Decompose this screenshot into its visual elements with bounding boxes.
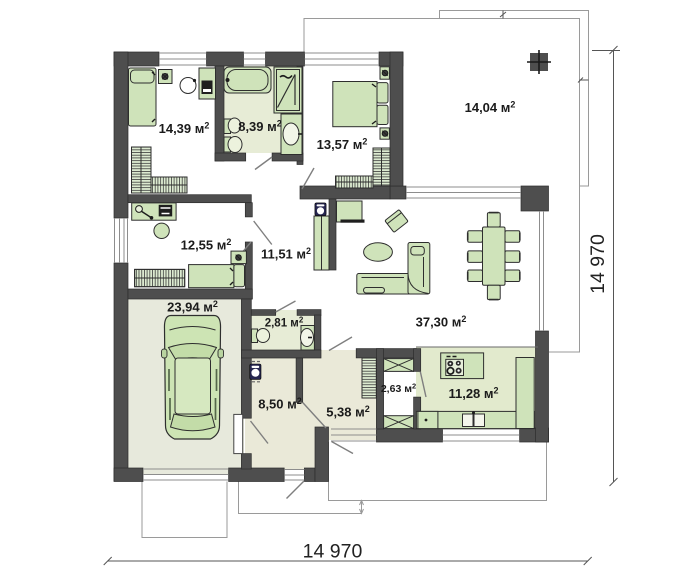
svg-text:11,28 м2: 11,28 м2 — [448, 386, 498, 402]
svg-text:5,38 м2: 5,38 м2 — [326, 404, 370, 420]
svg-text:14 970: 14 970 — [303, 541, 363, 563]
svg-text:23,94 м2: 23,94 м2 — [167, 299, 218, 315]
svg-text:12,55 м2: 12,55 м2 — [181, 237, 232, 253]
svg-text:14 970: 14 970 — [587, 234, 609, 294]
svg-text:14,04 м2: 14,04 м2 — [465, 100, 516, 116]
svg-text:37,30 м2: 37,30 м2 — [416, 314, 467, 330]
svg-text:8,50 м2: 8,50 м2 — [258, 396, 302, 412]
svg-text:8,39 м2: 8,39 м2 — [238, 119, 282, 135]
svg-text:11,51 м2: 11,51 м2 — [261, 246, 311, 262]
svg-text:13,57 м2: 13,57 м2 — [317, 137, 368, 153]
svg-text:2,81 м2: 2,81 м2 — [265, 316, 304, 330]
svg-text:2,63 м2: 2,63 м2 — [381, 382, 416, 396]
svg-text:14,39 м2: 14,39 м2 — [159, 121, 210, 137]
